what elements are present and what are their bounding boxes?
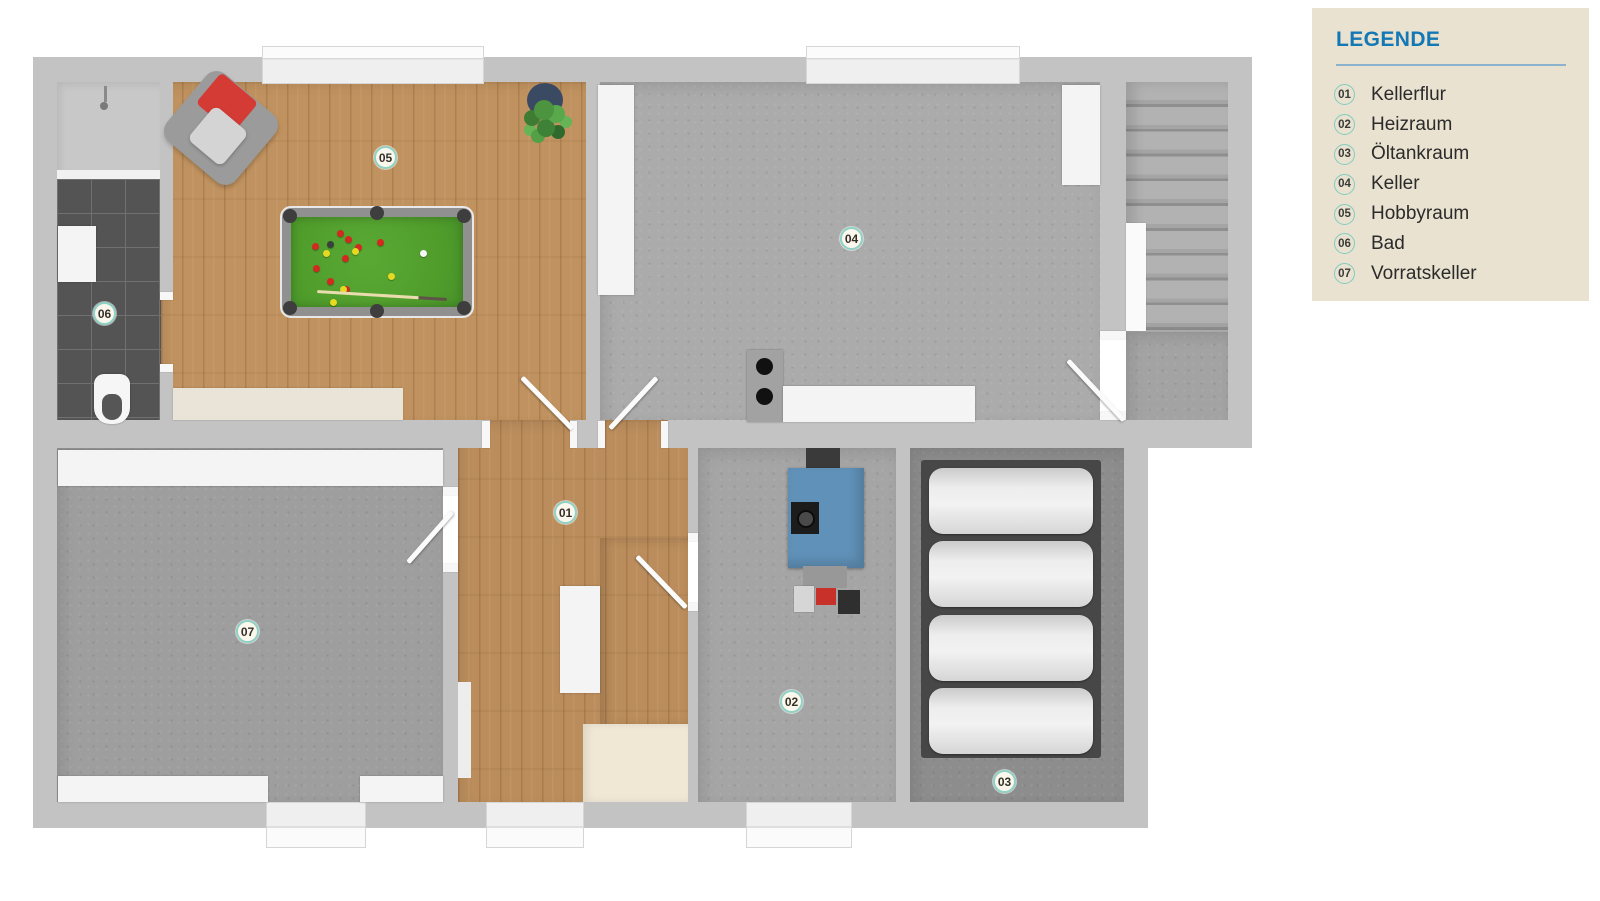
legend-item: 01 Kellerflur xyxy=(1334,80,1477,110)
corridor-baseboard xyxy=(458,682,471,778)
door-jamb xyxy=(1100,331,1126,339)
oil-tank xyxy=(929,468,1093,534)
potted-plant xyxy=(534,100,554,120)
billiard-ball xyxy=(327,278,334,285)
shower-tray-edge xyxy=(57,170,161,179)
legend-item: 04 Keller xyxy=(1334,169,1477,199)
shower-drain-icon xyxy=(100,102,108,110)
door-jamb xyxy=(598,421,605,448)
room-marker-06: 06 xyxy=(93,302,116,325)
billiard-ball xyxy=(313,265,320,272)
billiard-ball xyxy=(327,241,334,248)
legend-item-label: Kellerflur xyxy=(1371,84,1446,106)
wall-vorrat-flur-lower xyxy=(443,572,458,802)
room-marker-07: 07 xyxy=(236,620,259,643)
corridor-cabinet xyxy=(560,586,600,693)
chimney-block xyxy=(747,350,783,422)
window-hobbyraum xyxy=(262,46,484,84)
interior-stairs xyxy=(600,538,688,724)
chimney-flue-icon xyxy=(756,388,773,405)
legend-item-label: Keller xyxy=(1371,173,1420,195)
boiler-pump-top xyxy=(803,566,847,588)
wall-middle-east xyxy=(668,420,1252,448)
billiard-ball xyxy=(342,255,349,262)
door-jamb xyxy=(160,364,173,372)
legend-item-label: Hobbyraum xyxy=(1371,203,1469,225)
billiard-ball xyxy=(352,248,359,255)
legend-item: 07 Vorratskeller xyxy=(1334,259,1477,289)
door-jamb xyxy=(688,533,698,541)
legend-item-number: 07 xyxy=(1334,263,1355,284)
room-marker-04: 04 xyxy=(840,227,863,250)
screenshot-stage: 01 02 03 04 05 06 07 LEGENDE 01 Kellerfl… xyxy=(0,0,1600,901)
toilet-bowl xyxy=(102,394,122,420)
room-keller-floor xyxy=(600,82,1100,421)
window-vorratskeller xyxy=(266,802,366,848)
legend-item-number: 03 xyxy=(1334,144,1355,165)
billiard-ball xyxy=(388,273,395,280)
bath-cabinet xyxy=(58,226,96,282)
billiard-ball xyxy=(377,239,384,246)
keller-shelf-left xyxy=(598,85,634,295)
wall-bad-lower xyxy=(160,370,173,428)
door-jamb xyxy=(688,603,698,611)
legend-panel: LEGENDE 01 Kellerflur 02 Heizraum 03 Ölt… xyxy=(1312,8,1589,301)
pocket-icon xyxy=(457,301,471,315)
pocket-icon xyxy=(283,301,297,315)
pocket-icon xyxy=(370,304,384,318)
boiler xyxy=(788,468,864,568)
oil-tank xyxy=(929,615,1093,681)
vorrat-shelf-bottom-right xyxy=(360,776,443,802)
interior-stairs-landing xyxy=(583,724,688,802)
legend-item-number: 02 xyxy=(1334,114,1355,135)
window-kellerflur xyxy=(486,802,584,848)
vorrat-shelf-bottom-left xyxy=(58,776,268,802)
legend-item: 02 Heizraum xyxy=(1334,110,1477,140)
window-heizraum xyxy=(746,802,852,848)
wall-flur-heizraum-upper xyxy=(688,448,698,540)
room-marker-01: 01 xyxy=(554,501,577,524)
window-keller xyxy=(806,46,1020,84)
boiler-burner xyxy=(791,502,819,534)
boiler-pump-red xyxy=(816,588,836,605)
keller-counter xyxy=(783,386,975,422)
boiler-pump-motor xyxy=(838,590,860,614)
burner-ring-icon xyxy=(797,510,815,528)
oil-tank-rack xyxy=(921,460,1101,758)
cue-ball xyxy=(420,250,427,257)
door-jamb xyxy=(482,421,490,448)
room-bad-shower xyxy=(57,82,161,178)
toilet xyxy=(94,374,130,424)
vorrat-shelf-top xyxy=(58,450,443,486)
stairwell-open-door-leaf xyxy=(1126,223,1146,331)
wall-outer-right-upper xyxy=(1228,57,1252,448)
wall-middle-west xyxy=(33,420,490,448)
room-marker-05: 05 xyxy=(374,146,397,169)
pocket-icon xyxy=(370,206,384,220)
wall-flur-heizraum-lower xyxy=(688,610,698,802)
wall-bad-upper xyxy=(160,82,173,298)
hobbyraum-sideboard xyxy=(173,388,403,420)
door-jamb xyxy=(443,564,458,572)
door-jamb xyxy=(443,487,458,495)
legend-item-label: Öltankraum xyxy=(1371,143,1469,165)
legend-item: 05 Hobbyraum xyxy=(1334,199,1477,229)
room-marker-03: 03 xyxy=(993,770,1016,793)
legend-title: LEGENDE xyxy=(1336,28,1440,52)
billiard-ball xyxy=(312,243,319,250)
legend-item-number: 06 xyxy=(1334,233,1355,254)
door-jamb xyxy=(661,421,668,448)
oil-tank xyxy=(929,541,1093,607)
chimney-flue-icon xyxy=(756,358,773,375)
billiard-ball xyxy=(330,299,337,306)
legend-divider xyxy=(1336,64,1566,66)
billiard-ball xyxy=(345,236,352,243)
billiard-cue xyxy=(317,290,447,301)
wall-outer-right-lower xyxy=(1124,448,1148,828)
wall-outer-bottom xyxy=(33,802,1148,828)
pocket-icon xyxy=(283,209,297,223)
legend-item-number: 05 xyxy=(1334,204,1355,225)
billiard-table xyxy=(282,208,472,316)
boiler-pump-box xyxy=(794,586,814,612)
room-marker-02: 02 xyxy=(780,690,803,713)
oil-tank xyxy=(929,688,1093,754)
billiard-ball xyxy=(323,250,330,257)
legend-item: 06 Bad xyxy=(1334,229,1477,259)
pocket-icon xyxy=(457,209,471,223)
door-jamb xyxy=(160,292,173,300)
billiard-ball xyxy=(337,230,344,237)
keller-shelf-topright xyxy=(1062,85,1100,185)
legend-item-label: Heizraum xyxy=(1371,114,1452,136)
legend-item-number: 04 xyxy=(1334,174,1355,195)
legend-item-label: Bad xyxy=(1371,233,1405,255)
legend-item: 03 Öltankraum xyxy=(1334,140,1477,170)
shower-faucet-icon xyxy=(104,86,107,102)
legend-item-number: 01 xyxy=(1334,84,1355,105)
wall-heizraum-oeltank xyxy=(896,448,910,802)
legend-items: 01 Kellerflur 02 Heizraum 03 Öltankraum … xyxy=(1334,80,1477,289)
wall-keller-stairwell xyxy=(1100,57,1126,338)
legend-item-label: Vorratskeller xyxy=(1371,263,1477,285)
